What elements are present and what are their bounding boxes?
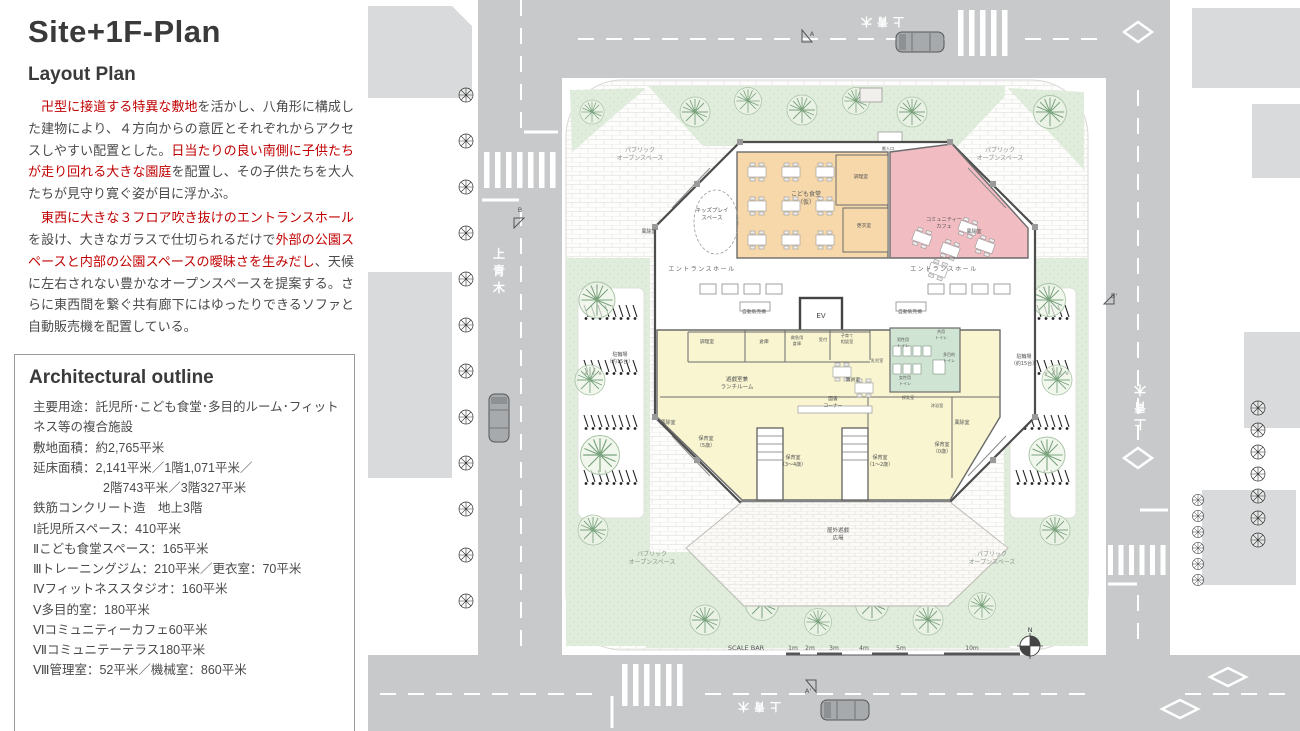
site-tree xyxy=(575,365,605,395)
road-name-south: 上青木 xyxy=(733,700,781,714)
outline-line: Ⅱこども食堂スペース：165平米 xyxy=(29,539,342,559)
crosswalk-stripe xyxy=(1161,545,1166,575)
crosswalk-stripe xyxy=(1129,545,1134,575)
label-vending-machine-west: 自動販売機 xyxy=(742,308,766,315)
label-kitchen: 調理室 xyxy=(700,338,715,345)
crosswalk-stripe xyxy=(1002,10,1008,56)
car-west-road xyxy=(489,394,509,442)
bicycle-symbol xyxy=(613,372,616,375)
scale-tick-10m: 10m xyxy=(965,645,979,652)
crosswalk-stripe xyxy=(1140,545,1145,575)
car-north-road xyxy=(896,32,944,52)
site-tree xyxy=(690,605,720,635)
architectural-outline-box: Architectural outline 主要用途：託児所･こども食堂･多目的… xyxy=(14,354,355,731)
street-tree xyxy=(1192,542,1203,553)
label-service-entrance: 搬入口 xyxy=(882,145,895,152)
page-title: Site+1F-Plan xyxy=(28,14,368,50)
crosswalk-stripe xyxy=(969,10,975,56)
site-tree xyxy=(787,95,817,125)
street-tree xyxy=(1192,526,1203,537)
body-text: を設け、大きなガラスで仕切られるだけで xyxy=(28,232,276,247)
bicycle-symbol xyxy=(1038,427,1041,430)
layout-paragraphs: 卍型に接道する特異な敷地を活かし、八角形に構成した建物により、４方向からの意匠と… xyxy=(28,96,368,338)
label-section-a-prime: A' xyxy=(805,687,811,695)
label-north: N xyxy=(1028,626,1033,634)
crosswalk-stripe xyxy=(991,10,997,56)
street-tree xyxy=(459,88,473,102)
crosswalk-stripe xyxy=(550,152,556,188)
car-south-road xyxy=(821,700,869,720)
bicycle-symbol xyxy=(599,427,602,430)
road-name-west: 上青木 xyxy=(492,246,506,295)
street-tree xyxy=(1251,423,1265,437)
street-tree xyxy=(1192,558,1203,569)
layout-plan-heading: Layout Plan xyxy=(28,64,368,86)
bicycle-symbol xyxy=(1059,317,1062,320)
site-tree xyxy=(969,593,996,620)
bicycle-symbol xyxy=(1052,317,1055,320)
bicycle-symbol xyxy=(627,482,630,485)
outline-title: Architectural outline xyxy=(29,367,342,389)
outline-line: 延床面積：2,141平米／1階1,071平米／ xyxy=(29,458,342,478)
bicycle-symbol xyxy=(627,317,630,320)
site-tree xyxy=(1033,284,1066,317)
bicycle-symbol xyxy=(1066,427,1069,430)
bicycle-symbol xyxy=(585,482,588,485)
outline-line: Ⅶコミュニテーテラス180平米 xyxy=(29,640,342,660)
crosswalk-stripe xyxy=(677,664,683,706)
bicycle-symbol xyxy=(613,482,616,485)
street-tree xyxy=(1192,574,1203,585)
site-tree xyxy=(581,436,620,475)
label-entrance-hall-west: エントランスホール xyxy=(668,266,735,273)
bicycle-symbol xyxy=(634,372,637,375)
street-tree xyxy=(1251,401,1265,415)
parcel-building-w xyxy=(368,272,452,478)
crosswalk-stripe xyxy=(539,152,545,188)
crosswalk-stripe xyxy=(655,664,661,706)
refuse-storage-box xyxy=(860,88,882,102)
bicycle-symbol xyxy=(620,427,623,430)
label-reception: 受付 xyxy=(819,336,827,343)
site-tree xyxy=(1034,96,1067,129)
bicycle-symbol xyxy=(1017,482,1020,485)
room-changing xyxy=(843,208,888,252)
street-tree xyxy=(459,134,473,148)
bicycle-symbol xyxy=(606,482,609,485)
bicycle-symbol xyxy=(1045,482,1048,485)
label-baby-bath-room: 沐浴室 xyxy=(931,402,944,409)
bicycle-symbol xyxy=(613,427,616,430)
outline-line: Ⅰ託児所スペース：410平米 xyxy=(29,519,342,539)
bicycle-symbol xyxy=(606,317,609,320)
crosswalk-stripe xyxy=(644,664,650,706)
crosswalk-stripe xyxy=(622,664,628,706)
road-name-north: 上青木 xyxy=(856,15,904,29)
bicycle-symbol xyxy=(585,427,588,430)
label-nursing-room: 授乳室 xyxy=(902,394,915,401)
bicycle-symbol xyxy=(627,427,630,430)
street-tree xyxy=(1251,467,1265,481)
crosswalk-stripe xyxy=(1108,545,1113,575)
crosswalk-stripe xyxy=(506,152,512,188)
label-windbreak-room-ne: 風除室 xyxy=(966,228,981,235)
street-tree xyxy=(459,410,473,424)
bicycle-symbol xyxy=(634,317,637,320)
outline-line: 2階743平米／3階327平米 xyxy=(29,478,342,498)
crosswalk-stripe xyxy=(1119,545,1124,575)
street-tree xyxy=(1251,533,1265,547)
outline-lines: 主要用途：託児所･こども食堂･多目的ルーム･フィットネス等の複合施設敷地面積：約… xyxy=(29,397,342,681)
bicycle-symbol xyxy=(606,372,609,375)
site-tree xyxy=(913,605,943,635)
crosswalk-stripe xyxy=(1150,545,1155,575)
scale-tick-2m: 2m xyxy=(805,645,815,652)
left-panel: Site+1F-Plan Layout Plan 卍型に接道する特異な敷地を活か… xyxy=(0,0,368,731)
road-name-east: 上青木 xyxy=(1133,383,1147,432)
scale-tick-3m: 3m xyxy=(829,645,839,652)
site-tree xyxy=(680,97,710,127)
label-staff-room: 職員室 xyxy=(846,376,861,383)
label-elevator: EV xyxy=(816,312,825,320)
highlighted-text: 東西に大きな３フロア吹き抜けのエントランスホール xyxy=(28,210,354,225)
bicycle-symbol xyxy=(1038,372,1041,375)
site-tree xyxy=(1042,365,1072,395)
parcel-building-e2 xyxy=(1244,332,1300,428)
outline-line: Ⅲトレーニングジム：210平米／更衣室：70平米 xyxy=(29,559,342,579)
parcel-building-se xyxy=(1202,490,1296,585)
label-section-b-prime: B' xyxy=(1111,292,1117,300)
bicycle-symbol xyxy=(1066,482,1069,485)
label-scale-bar: SCALE BAR xyxy=(728,644,765,652)
street-tree xyxy=(459,180,473,194)
site-tree xyxy=(579,282,615,318)
site-tree xyxy=(1029,437,1065,473)
bicycle-symbol xyxy=(1066,317,1069,320)
label-entrance-hall-east: エントランスホール xyxy=(910,266,977,273)
cafeteria-tables xyxy=(748,163,834,249)
bicycle-symbol xyxy=(1024,482,1027,485)
scale-bar xyxy=(786,653,1020,656)
bicycle-symbol xyxy=(620,482,623,485)
bicycle-symbol xyxy=(585,317,588,320)
bicycle-symbol xyxy=(620,372,623,375)
bicycle-symbol xyxy=(634,427,637,430)
label-windbreak-room-sw: 風除室 xyxy=(660,419,675,426)
bicycle-symbol xyxy=(606,427,609,430)
street-tree xyxy=(459,502,473,516)
street-tree xyxy=(459,594,473,608)
bicycle-symbol xyxy=(599,482,602,485)
parcel-building-e1 xyxy=(1252,104,1300,178)
page: Site+1F-Plan Layout Plan 卍型に接道する特異な敷地を活か… xyxy=(0,0,1300,731)
street-tree xyxy=(459,364,473,378)
bicycle-symbol xyxy=(1045,427,1048,430)
outline-line: 鉄筋コンクリート造 地上3階 xyxy=(29,498,342,518)
bicycle-symbol xyxy=(627,372,630,375)
outline-line: Ⅴ多目的室：180平米 xyxy=(29,600,342,620)
crosswalk-stripe xyxy=(980,10,986,56)
label-storage: 倉庫 xyxy=(759,338,769,345)
bicycle-symbol xyxy=(1038,482,1041,485)
street-tree xyxy=(459,456,473,470)
bicycle-symbol xyxy=(592,427,595,430)
street-tree xyxy=(1192,510,1203,521)
outdoor-playground xyxy=(686,502,1008,606)
outline-line: Ⅷ管理室：52平米／機械室：860平米 xyxy=(29,660,342,680)
scale-tick-1m: 1m xyxy=(788,645,798,652)
crosswalk-stripe xyxy=(958,10,964,56)
label-section-b: B xyxy=(518,206,522,214)
parcel-building-ne xyxy=(1192,8,1300,88)
outline-line: Ⅳフィットネススタジオ：160平米 xyxy=(29,579,342,599)
label-vending-machine-east: 自動販売機 xyxy=(898,308,922,315)
crosswalk-stripe xyxy=(484,152,490,188)
road-east xyxy=(1106,0,1170,731)
crosswalk-stripe xyxy=(517,152,523,188)
site-tree xyxy=(580,100,604,124)
bicycle-symbol xyxy=(1031,482,1034,485)
street-tree xyxy=(1251,489,1265,503)
site-plan-drawing: パブリックオープンスペースパブリックオープンスペースパブリックオープンスペースパ… xyxy=(368,0,1300,731)
bicycle-symbol xyxy=(1038,317,1041,320)
crosswalk-stripe xyxy=(666,664,672,706)
crosswalk-stripe xyxy=(633,664,639,706)
street-tree xyxy=(1251,445,1265,459)
bicycle-symbol xyxy=(613,317,616,320)
label-windbreak-room-se: 風除室 xyxy=(954,419,969,426)
street-tree xyxy=(1192,494,1203,505)
site-tree xyxy=(897,97,927,127)
bicycle-symbol xyxy=(1031,427,1034,430)
label-kitchen-cafeteria: 調理室 xyxy=(854,173,869,180)
bicycle-symbol xyxy=(620,317,623,320)
paragraph: 卍型に接道する特異な敷地を活かし、八角形に構成した建物により、４方向からの意匠と… xyxy=(28,96,354,205)
label-section-a: A xyxy=(810,30,815,38)
site-tree xyxy=(1040,515,1070,545)
site-plan-svg: パブリックオープンスペースパブリックオープンスペースパブリックオープンスペースパ… xyxy=(368,0,1300,731)
bicycle-symbol xyxy=(1059,482,1062,485)
label-infant-room: 乳児室 xyxy=(871,357,884,364)
site-tree xyxy=(735,88,762,115)
street-tree xyxy=(1251,511,1265,525)
street-tree xyxy=(459,548,473,562)
street-tree xyxy=(459,318,473,332)
bicycle-symbol xyxy=(634,482,637,485)
bicycle-symbol xyxy=(592,482,595,485)
highlighted-text: 卍型に接道する特異な敷地 xyxy=(28,99,198,114)
bicycle-symbol xyxy=(1059,427,1062,430)
street-tree xyxy=(459,272,473,286)
bicycle-symbol xyxy=(1052,482,1055,485)
street-tree xyxy=(459,226,473,240)
label-changing-room: 更衣室 xyxy=(857,222,872,229)
paragraph: 東西に大きな３フロア吹き抜けのエントランスホールを設け、大きなガラスで仕切られる… xyxy=(28,207,354,338)
outline-line: Ⅵコミュニティーカフェ60平米 xyxy=(29,620,342,640)
parcel-building-nw xyxy=(368,6,472,98)
crosswalk-stripe xyxy=(495,152,501,188)
bicycle-symbol xyxy=(1045,317,1048,320)
scale-tick-4m: 4m xyxy=(859,645,869,652)
outline-line: 主要用途：託児所･こども食堂･多目的ルーム･フィットネス等の複合施設 xyxy=(29,397,342,438)
label-windbreak-room-nw: 風除室 xyxy=(641,228,656,235)
scale-tick-5m: 5m xyxy=(896,645,906,652)
site-tree xyxy=(578,515,608,545)
outline-line: 敷地面積：約2,765平米 xyxy=(29,438,342,458)
bicycle-symbol xyxy=(1052,427,1055,430)
room-kitchen-cafeteria xyxy=(836,155,888,205)
site-tree xyxy=(805,609,832,636)
crosswalk-stripe xyxy=(528,152,534,188)
label-childcare-consult-room: 子育て相談室 xyxy=(841,332,854,345)
